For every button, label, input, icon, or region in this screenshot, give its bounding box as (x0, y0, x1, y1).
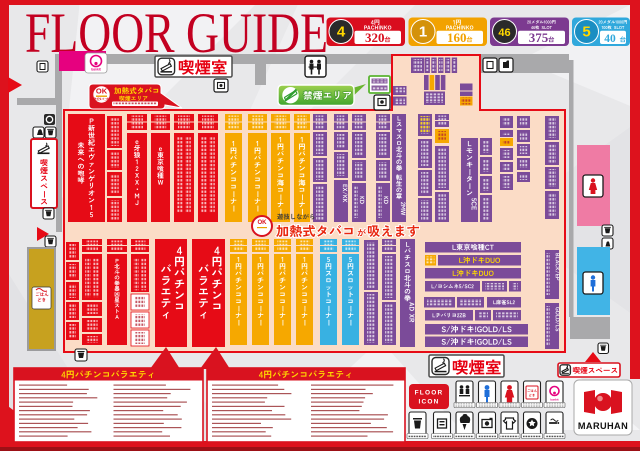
svg-text:FLOOR: FLOOR (415, 390, 444, 397)
svg-text:5: 5 (582, 24, 590, 41)
svg-text:OK: OK (96, 87, 108, 96)
svg-text:1: 1 (419, 24, 427, 41)
svg-text:4: 4 (337, 24, 346, 41)
svg-text:375: 375 (529, 30, 549, 45)
svg-text:ICON: ICON (418, 399, 439, 406)
svg-text:OK: OK (258, 220, 268, 226)
svg-text:MARUHAN: MARUHAN (578, 421, 628, 431)
svg-text:40: 40 (604, 33, 616, 45)
svg-text:160: 160 (447, 30, 467, 45)
svg-text:46: 46 (498, 27, 510, 39)
svg-text:320: 320 (365, 30, 385, 45)
svg-text:加熱式タバコ対応: 加熱式タバコ対応 (90, 97, 112, 101)
svg-text:bankit: bankit (550, 398, 558, 402)
svg-text:bankit: bankit (91, 68, 101, 72)
